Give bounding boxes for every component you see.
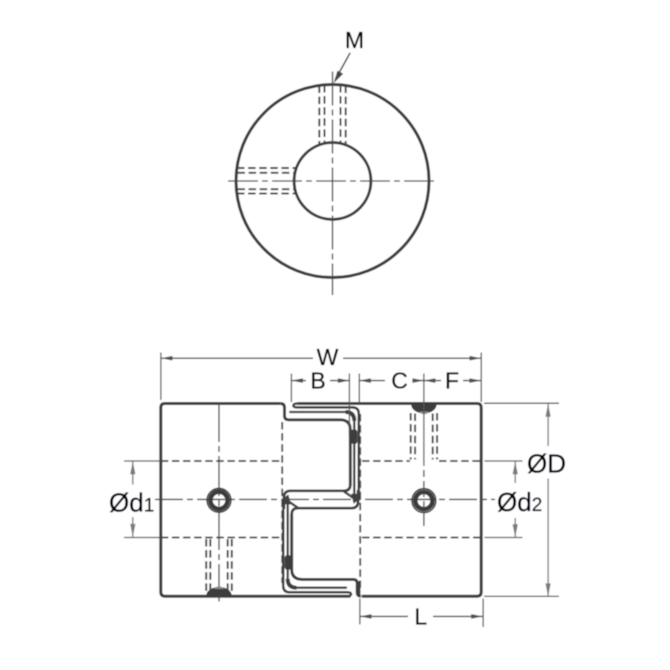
svg-text:C: C (391, 368, 408, 394)
svg-text:L: L (414, 604, 427, 630)
svg-text:B: B (310, 368, 325, 394)
svg-text:M: M (345, 27, 364, 53)
svg-text:ØD: ØD (527, 448, 566, 478)
svg-text:W: W (317, 344, 339, 370)
svg-text:F: F (445, 368, 459, 394)
